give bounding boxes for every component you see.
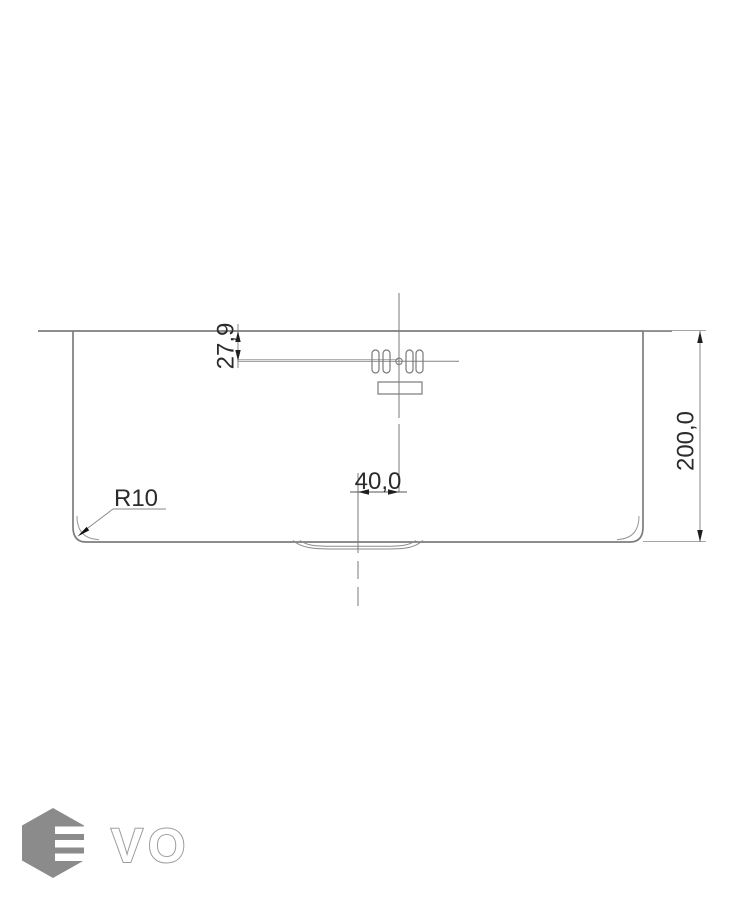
corner-radius-callout: R10 bbox=[114, 485, 158, 512]
overflow-cover-rect bbox=[378, 382, 422, 394]
arrowhead-down bbox=[697, 530, 703, 542]
bowl-height-dimension: 200,0 bbox=[672, 411, 699, 471]
evo-logo: VO bbox=[22, 808, 190, 878]
bottom-right-inner-radius bbox=[617, 516, 639, 540]
logo-e-gap bbox=[55, 840, 86, 848]
overflow-offset-dimension: 27,9 bbox=[212, 323, 239, 370]
technical-drawing-page: 27,9 200,0 40,0 R10 VO bbox=[0, 0, 738, 900]
logo-vo-text: VO bbox=[111, 820, 190, 873]
logo-e-gap bbox=[55, 854, 86, 862]
drain-offset-dimension: 40,0 bbox=[355, 468, 402, 495]
arrowhead-up bbox=[697, 331, 703, 343]
sink-section-drawing: 27,9 200,0 40,0 R10 VO bbox=[0, 0, 738, 900]
logo-e-gap bbox=[55, 827, 86, 835]
